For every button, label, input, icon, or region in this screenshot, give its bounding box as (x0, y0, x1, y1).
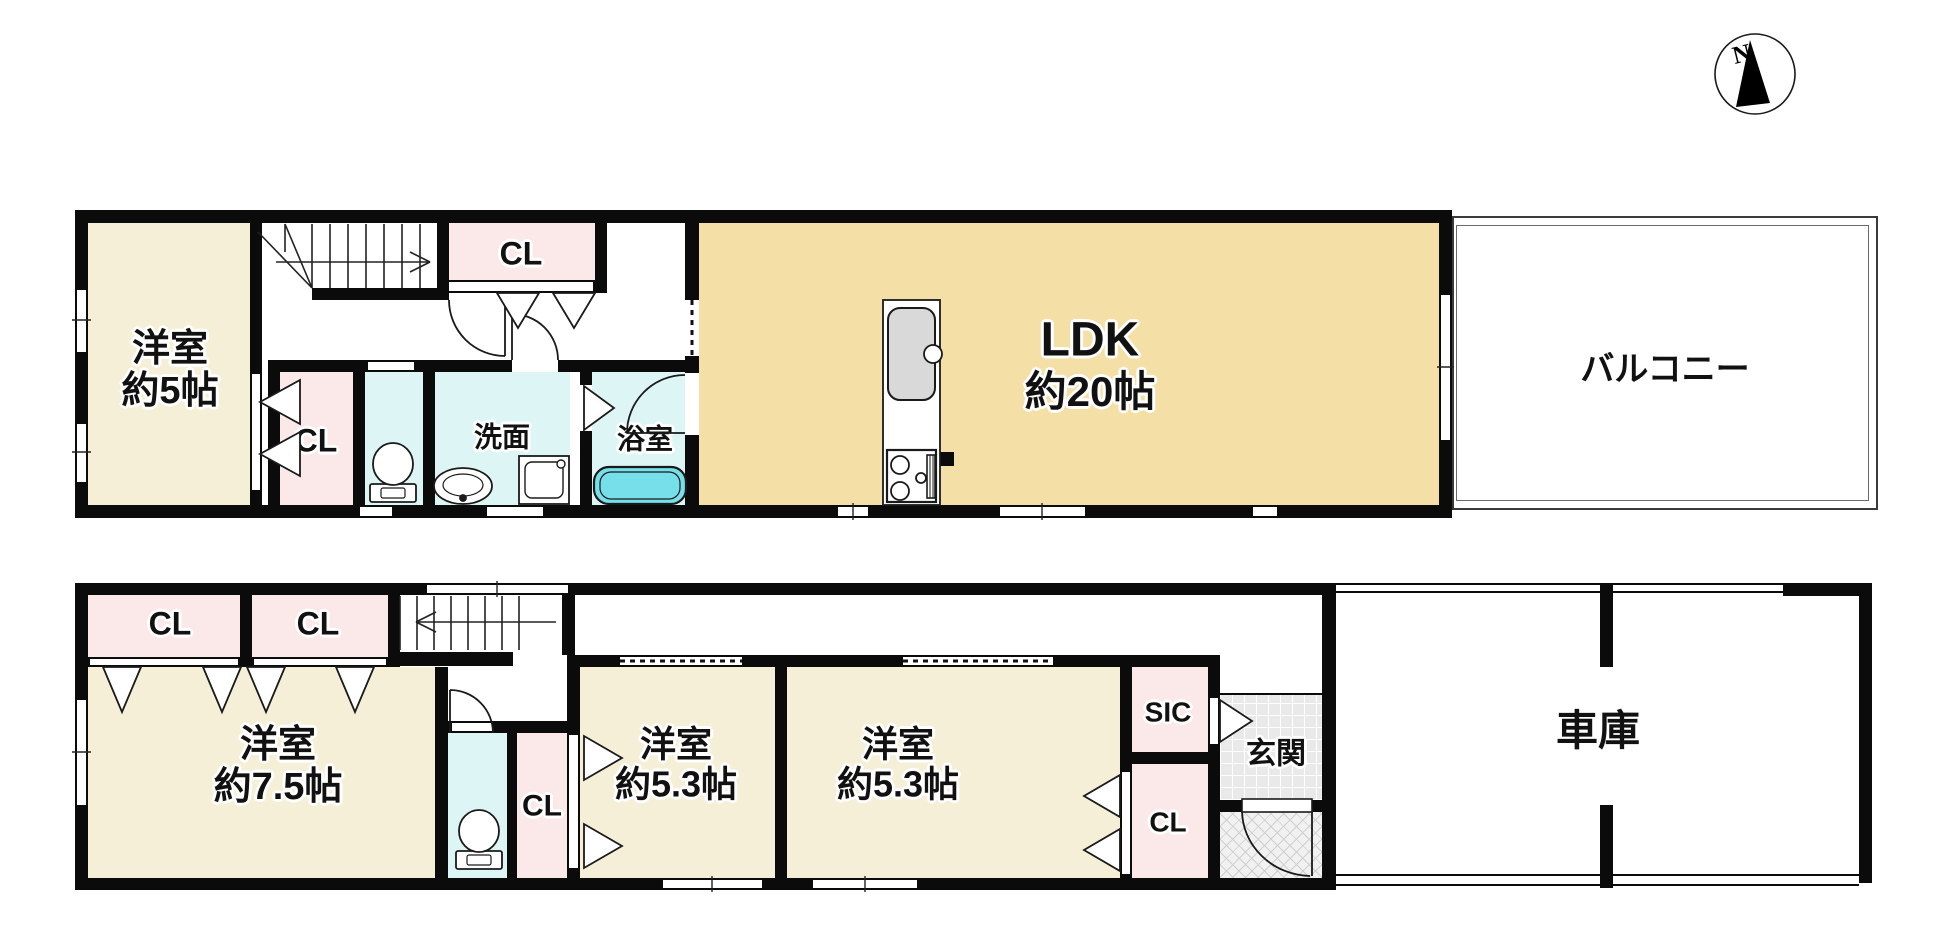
wall (938, 452, 954, 466)
wall (240, 595, 252, 667)
washroom-label: 洗面 (474, 423, 530, 454)
door-opening (452, 721, 492, 733)
wall (685, 223, 699, 300)
bathroom-label: 浴室 (617, 425, 673, 456)
window (838, 505, 868, 518)
garage-boundary (1336, 874, 1859, 886)
staircase-1f (400, 596, 556, 650)
wall (562, 595, 575, 655)
wall (353, 372, 365, 505)
wall (75, 583, 1336, 595)
wall (1322, 583, 1336, 890)
window (75, 290, 88, 352)
wall (1600, 805, 1613, 888)
closet-c-label: CL (522, 790, 562, 823)
door-opening (567, 735, 580, 868)
balcony-label: バルコニー (1580, 351, 1749, 388)
wall (388, 652, 513, 666)
window (813, 878, 917, 890)
closet-b-label: CL (297, 606, 340, 641)
wall (558, 360, 699, 372)
closet-d-label: CL (1149, 808, 1186, 839)
door-opening (685, 373, 699, 435)
window (487, 505, 543, 518)
wall (1310, 800, 1322, 812)
wall (1208, 655, 1220, 878)
closet-door (88, 657, 240, 667)
door-opening (512, 360, 558, 372)
window (1000, 505, 1085, 518)
wall (250, 490, 262, 505)
door-opening (1120, 772, 1132, 874)
wall (1132, 752, 1208, 764)
closet-door (252, 657, 388, 667)
window (663, 878, 762, 890)
wall (435, 667, 448, 878)
wall (1220, 800, 1244, 812)
ldk-label: LDK (1041, 315, 1140, 368)
door-opening (1208, 698, 1220, 744)
garage-label: 車庫 (1556, 708, 1640, 754)
bedroom53a-label: 洋室約5.3帖 (615, 724, 737, 803)
wall (595, 223, 607, 293)
ldk-size-label: 約20帖 (1025, 369, 1156, 415)
wall (507, 721, 517, 878)
wall (567, 655, 1220, 667)
wall (1859, 583, 1872, 883)
wall (1600, 583, 1613, 667)
wall (437, 223, 449, 288)
wall (268, 372, 280, 505)
staircase-2f (258, 224, 430, 288)
sic-label: SIC (1145, 698, 1192, 729)
closet-a-label: CL (149, 606, 192, 641)
window (360, 505, 392, 518)
entrance-porch (1220, 812, 1322, 878)
door-opening (368, 360, 414, 372)
bedroom53b-label: 洋室約5.3帖 (837, 724, 959, 803)
compass-north-label: N (1730, 39, 1754, 71)
room-toilet-2f (365, 372, 423, 505)
bedroom75-label: 洋室約7.5帖 (214, 725, 343, 809)
wall (75, 505, 1452, 518)
door-opening (580, 385, 592, 431)
closet-door (250, 374, 262, 490)
wall (423, 372, 435, 505)
window (1439, 295, 1452, 440)
window (1253, 505, 1277, 518)
room-toilet-1f (448, 733, 507, 878)
window (75, 700, 88, 805)
wall (312, 288, 449, 300)
wall (75, 210, 1452, 223)
window (427, 583, 568, 595)
floor-plan-canvas: 洋室約5帖 CL CL 洗面 浴室 LDK 約20帖 バルコニー (0, 0, 1956, 933)
window (75, 424, 88, 482)
wall (685, 435, 699, 505)
closet-top-2f-label: CL (500, 236, 543, 271)
wall (775, 667, 787, 878)
closet-door (447, 280, 595, 293)
garage-boundary (1336, 583, 1783, 593)
wall (250, 223, 262, 374)
closet-side-2f-label: CL (295, 423, 338, 458)
bedroom5-label: 洋室約5帖 (121, 329, 218, 413)
entrance-label: 玄関 (1246, 738, 1306, 771)
compass-icon (1715, 34, 1795, 114)
